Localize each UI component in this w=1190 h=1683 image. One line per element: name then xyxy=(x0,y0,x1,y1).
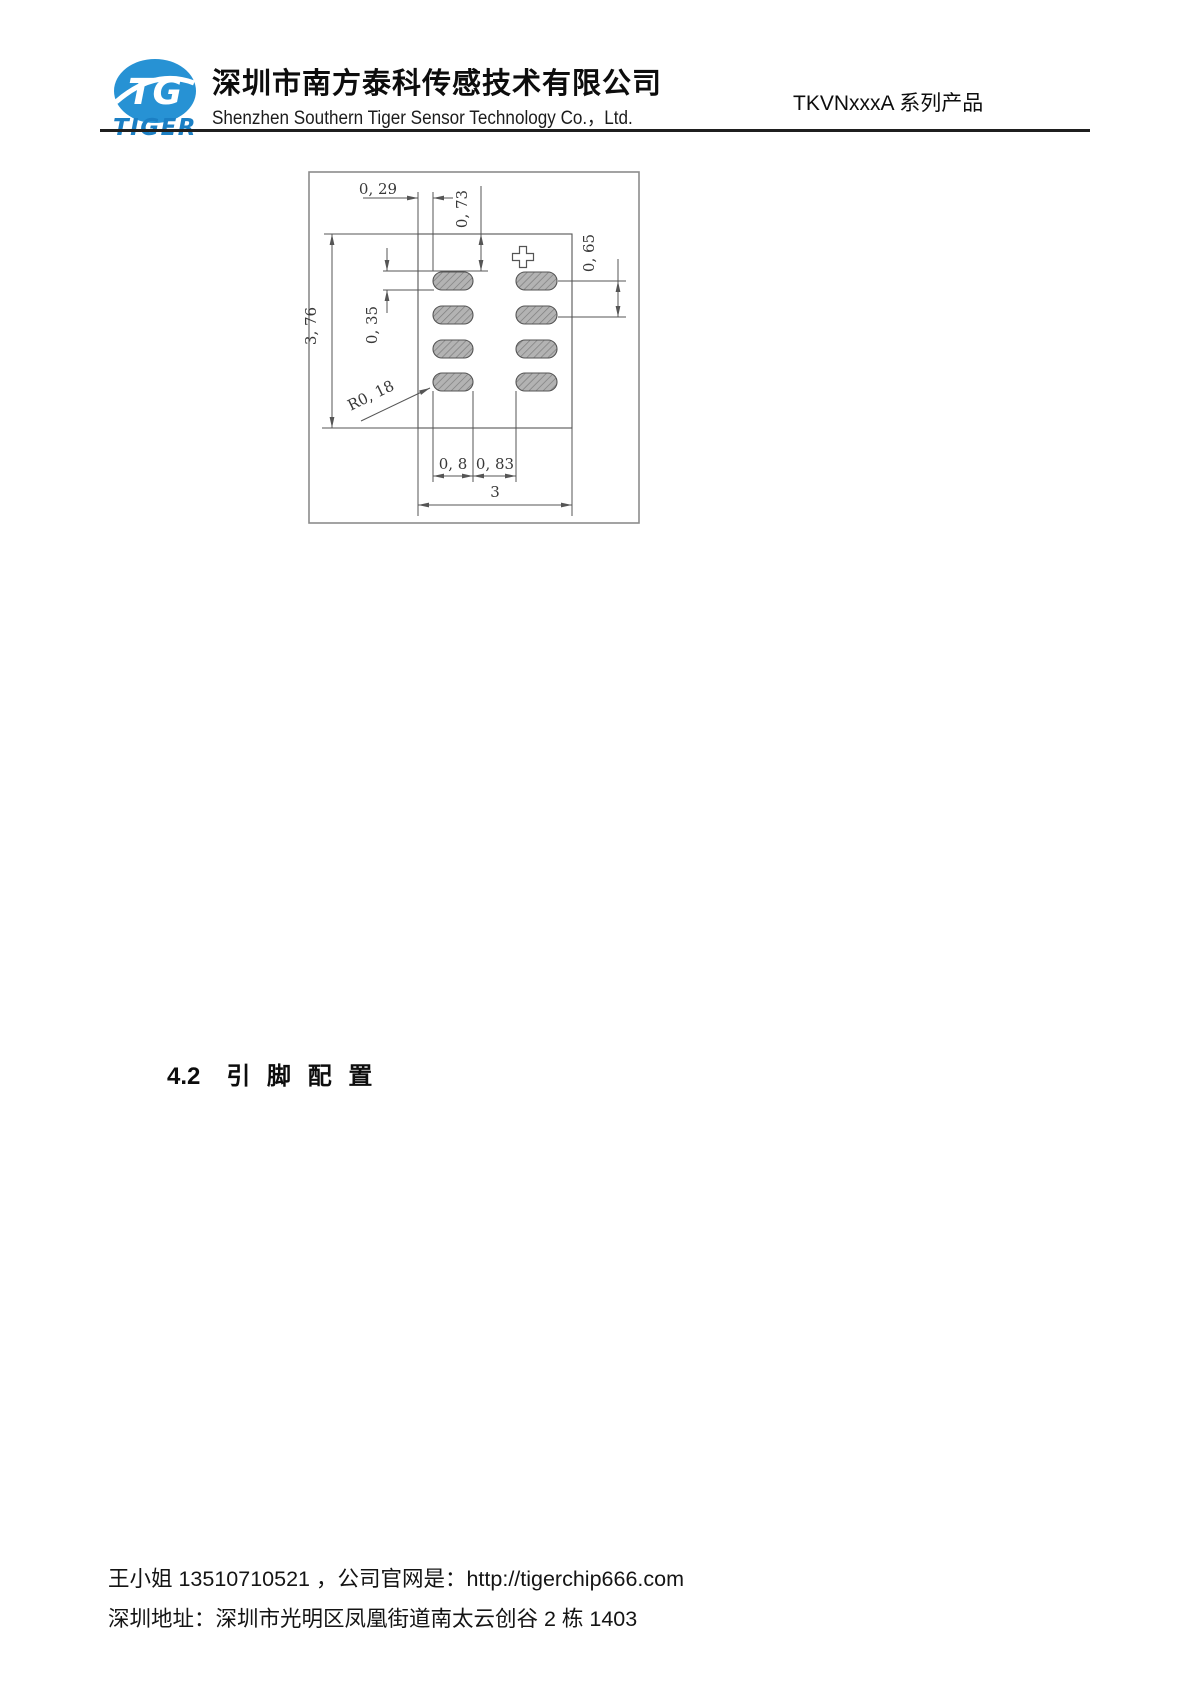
dim-label-0-83: 0, 83 xyxy=(476,455,514,473)
arrowhead xyxy=(330,417,335,428)
header-divider xyxy=(100,129,1090,132)
pad-r1 xyxy=(516,272,557,290)
arrowhead xyxy=(616,306,621,317)
arrowhead xyxy=(462,474,473,479)
arrowhead xyxy=(385,290,390,301)
section-heading-4-2: 4.2 引 脚 配 置 xyxy=(167,1056,377,1091)
datasheet-page: TG TIGER 深圳市南方泰科传感技术有限公司 Shenzhen Southe… xyxy=(0,0,1190,1683)
pad-l1 xyxy=(433,272,473,290)
dim-label-0-73: 0, 73 xyxy=(453,190,471,228)
footer-contact-line: 王小姐 13510710521 ，公司官网是：http://tigerchip6… xyxy=(108,1560,684,1600)
footer-address-line: 深圳地址：深圳市光明区凤凰街道南太云创谷 2 栋 1403 xyxy=(108,1600,684,1640)
arrowhead xyxy=(433,196,444,201)
arrowhead xyxy=(418,503,429,508)
pad-column-right xyxy=(516,272,557,391)
arrowhead xyxy=(330,234,335,245)
pad-l2 xyxy=(433,306,473,324)
dim-label-0-29: 0, 29 xyxy=(359,180,397,198)
arrowhead xyxy=(433,474,444,479)
company-name-en: Shenzhen Southern Tiger Sensor Technolog… xyxy=(212,103,633,130)
pad-layout-drawing: 0, 29 0, 73 3, 76 xyxy=(280,155,676,547)
pad-r2 xyxy=(516,306,557,324)
component-outline xyxy=(418,234,572,428)
dim-label-0-65: 0, 65 xyxy=(580,234,598,272)
page-footer: 王小姐 13510710521 ，公司官网是：http://tigerchip6… xyxy=(108,1560,684,1639)
dim-label-r0-18: R0, 18 xyxy=(345,377,397,415)
dim-label-3-76: 3, 76 xyxy=(302,307,320,345)
dim-label-0-8: 0, 8 xyxy=(439,455,468,473)
arrowhead xyxy=(419,386,431,395)
dim-label-3: 3 xyxy=(490,483,500,501)
pad-r3 xyxy=(516,340,557,358)
arrowhead xyxy=(473,474,484,479)
polarity-cross-icon xyxy=(513,247,534,268)
arrowhead xyxy=(407,196,418,201)
pad-layout-svg: 0, 29 0, 73 3, 76 xyxy=(280,155,676,547)
dim-label-0-35: 0, 35 xyxy=(363,306,381,344)
section-title: 引 脚 配 置 xyxy=(226,1056,377,1091)
dimension-0-73 xyxy=(479,186,484,271)
company-name-cn: 深圳市南方泰科传感技术有限公司 xyxy=(212,60,662,102)
pad-column-left xyxy=(433,272,473,391)
arrowhead xyxy=(616,281,621,292)
arrowhead xyxy=(479,260,484,271)
product-series-label: TKVNxxxA 系列产品 xyxy=(793,87,983,117)
drawing-frame xyxy=(309,172,639,523)
arrowhead xyxy=(385,260,390,271)
arrowhead xyxy=(479,234,484,245)
pad-l4 xyxy=(433,373,473,391)
pad-l3 xyxy=(433,340,473,358)
dimension-0-29 xyxy=(363,192,453,271)
logo-brand-text: TIGER xyxy=(113,115,197,141)
section-number: 4.2 xyxy=(167,1063,200,1091)
arrowhead xyxy=(561,503,572,508)
arrowhead xyxy=(505,474,516,479)
pad-r4 xyxy=(516,373,557,391)
